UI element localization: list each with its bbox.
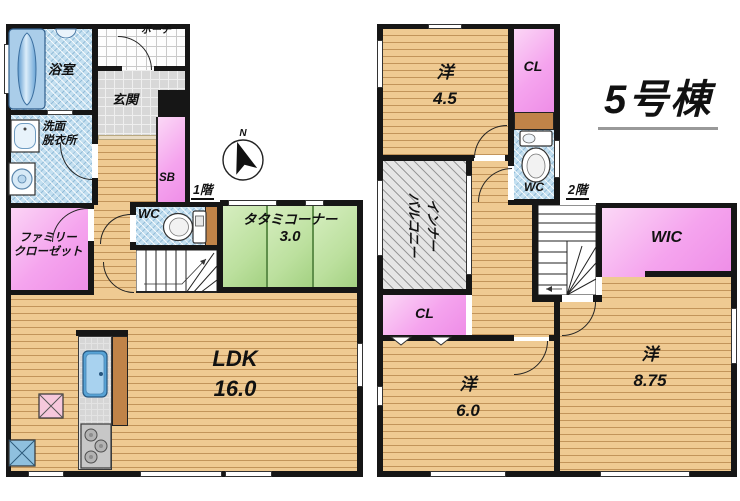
window: [225, 471, 272, 477]
room-label-family-closet-line2: クローゼット: [14, 246, 83, 260]
window: [377, 40, 383, 88]
room-label-tatami-name: タタミコーナー: [243, 212, 338, 228]
window: [228, 200, 277, 206]
room-label-family-closet-line1: ファミリー: [19, 232, 77, 246]
floor-plan: N 浴室 ポーチ 玄関 洗面 脱衣所 SB 1階 WC ファミリー クローゼット…: [0, 0, 740, 501]
room-label-ldk: LDK 16.0: [170, 344, 300, 403]
wall-segment: [156, 117, 158, 205]
window: [357, 343, 363, 387]
wc-shelf-2f: [514, 112, 554, 130]
building-title: 5号棟: [598, 76, 718, 130]
wall-segment: [6, 203, 94, 208]
window: [305, 200, 324, 206]
room-label-entrance: 玄関: [112, 92, 138, 108]
room-label-washroom-line2: 脱衣所: [42, 135, 77, 149]
wall-segment: [154, 66, 185, 71]
room-label-inner-balcony-line1: インナー: [425, 199, 444, 251]
room-label-shoe-box: SB: [159, 172, 175, 186]
window: [600, 471, 690, 477]
sliding-door-marker: [386, 336, 458, 346]
side-table-pink: [38, 393, 64, 419]
room-label-family-closet: ファミリー クローゼット: [8, 232, 88, 260]
wall-segment: [377, 24, 560, 29]
room-label-wic: WIC: [602, 228, 731, 247]
wall-segment: [357, 200, 363, 477]
door-opening: [130, 215, 136, 242]
room-label-porch: ポーチ: [141, 25, 171, 37]
floor-label-1f: 1階: [191, 183, 214, 200]
room-label-bedroom-60-size: 6.0: [456, 398, 480, 424]
room-label-bedroom-45-name: 洋: [437, 60, 454, 86]
stairs-1f: [136, 250, 217, 293]
wall-segment: [554, 301, 560, 477]
room-shoe-box: [158, 117, 185, 205]
room-label-washroom: 洗面 脱衣所: [42, 121, 77, 149]
room-label-bedroom-60: 洋 6.0: [408, 372, 528, 425]
window: [428, 24, 462, 29]
wall-segment: [377, 289, 472, 295]
room-label-ldk-size: 16.0: [214, 374, 257, 404]
room-label-closet-upper: CL: [512, 58, 554, 75]
window: [140, 471, 222, 477]
wall-segment: [158, 90, 185, 117]
compass-icon: N: [216, 124, 270, 184]
hallway-1f-upper: [96, 139, 158, 205]
toilet-icon: [517, 129, 555, 187]
door-opening: [92, 144, 98, 178]
bath-counter: [55, 28, 77, 38]
kitchen-cabinet: [112, 336, 128, 426]
room-label-wc-2f: WC: [514, 180, 554, 194]
wall-segment: [185, 24, 190, 206]
storage-box-blue: [8, 439, 36, 467]
wall-segment: [645, 271, 731, 277]
entrance-step: [98, 135, 158, 140]
room-label-wc-1f: WC: [138, 206, 160, 222]
hallway-2f-c: [472, 300, 557, 337]
toilet-icon: [162, 208, 208, 246]
window: [731, 308, 737, 364]
sliding-door-marker: [47, 110, 73, 115]
kitchen-stove: [80, 423, 112, 469]
room-bedroom-875-upper: [602, 277, 731, 302]
washing-machine: [8, 162, 36, 196]
hallway-2f-b: [472, 205, 532, 300]
window: [377, 386, 383, 406]
wall-segment: [136, 291, 217, 293]
wall-segment: [532, 295, 562, 302]
stairs-2f: [538, 205, 596, 295]
room-label-bedroom-60-name: 洋: [460, 372, 477, 398]
wall-segment: [6, 290, 90, 295]
floor-label-2f: 2階: [566, 183, 589, 200]
room-label-tatami: タタミコーナー 3.0: [223, 212, 357, 246]
wall-segment: [532, 205, 538, 301]
wall-segment: [596, 203, 737, 208]
room-label-inner-balcony: インナー バルコニー: [383, 161, 466, 289]
door-opening: [88, 209, 94, 241]
room-label-ldk-name: LDK: [212, 344, 257, 374]
balcony-sliding-window: [466, 175, 472, 275]
room-label-washroom-line1: 洗面: [42, 121, 77, 135]
room-label-bedroom-45-size: 4.5: [433, 86, 457, 112]
kitchen-sink: [82, 350, 108, 398]
wall-segment: [217, 287, 363, 293]
room-label-tatami-size: 3.0: [280, 228, 301, 246]
window: [28, 471, 64, 477]
compass-north-text: N: [239, 128, 247, 139]
wall-segment: [593, 295, 602, 302]
bathtub: [8, 28, 46, 110]
room-label-closet-lower: CL: [383, 305, 466, 322]
washbasin: [10, 119, 40, 153]
room-label-inner-balcony-line2: バルコニー: [406, 193, 425, 258]
room-label-bedroom-875-size: 8.75: [633, 368, 666, 394]
window: [430, 471, 506, 477]
room-label-bedroom-875-name: 洋: [642, 342, 659, 368]
room-label-bathroom: 浴室: [48, 62, 74, 78]
room-label-bedroom-45: 洋 4.5: [385, 60, 505, 111]
room-label-bedroom-875: 洋 8.75: [590, 342, 710, 395]
